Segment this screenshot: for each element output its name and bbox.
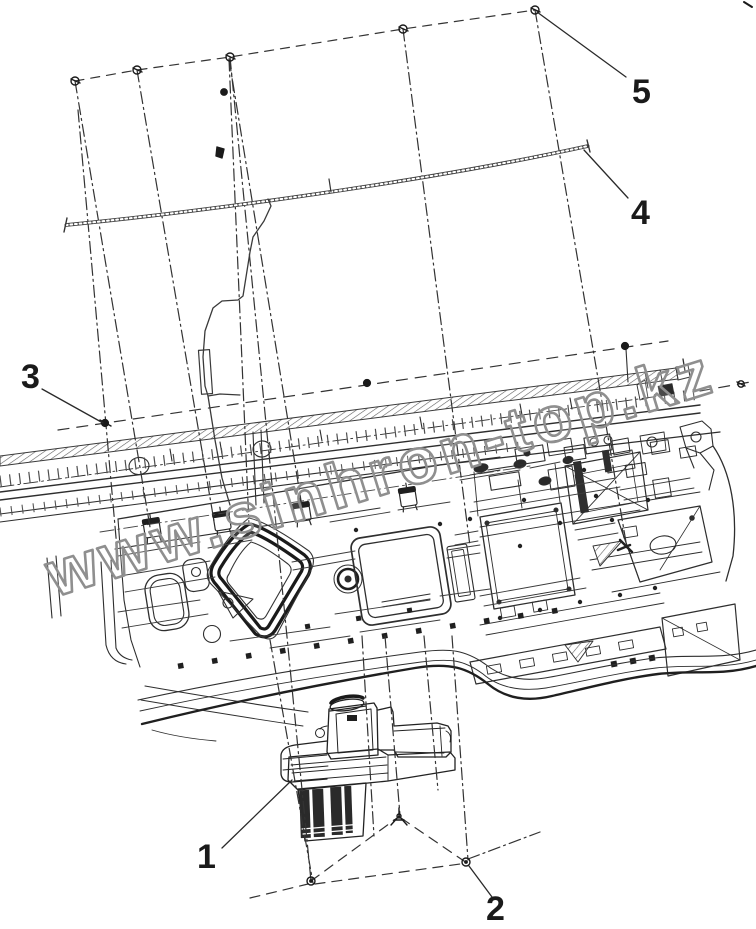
svg-text:2: 2: [486, 890, 505, 928]
svg-text:4: 4: [631, 194, 650, 232]
svg-text:5: 5: [632, 73, 651, 111]
svg-text:3: 3: [21, 358, 40, 396]
svg-text:1: 1: [197, 838, 216, 876]
